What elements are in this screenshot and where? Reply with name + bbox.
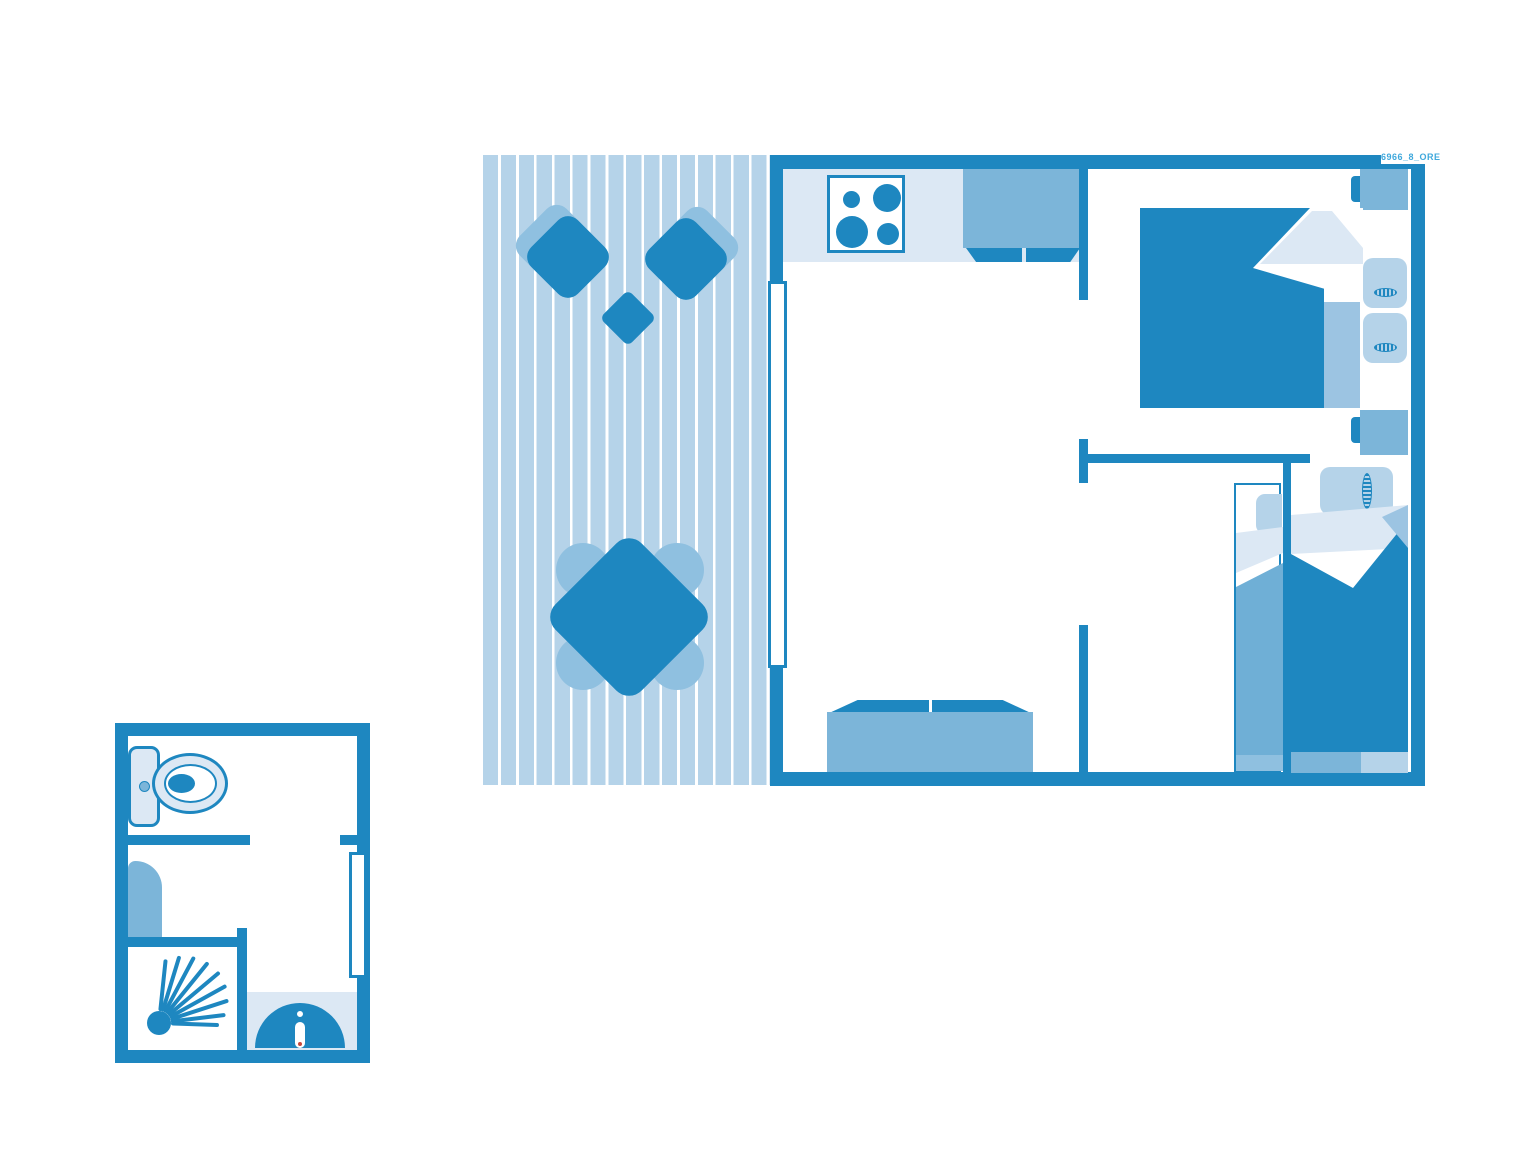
faucet-dot-icon [298, 1042, 302, 1046]
floor-plan: 6966_8_ORE [0, 0, 1536, 1152]
shower-wall-top [128, 937, 238, 947]
bed-foot-bench [1361, 752, 1408, 773]
bathroom-door-icon [349, 852, 367, 978]
bath-wall-stub [340, 835, 357, 845]
sofa-icon [827, 712, 1033, 772]
bed-foot-bench [1291, 752, 1361, 773]
sliding-door-icon [768, 281, 787, 668]
burner-icon [877, 223, 899, 245]
wall-living-lower [1079, 625, 1088, 772]
wall-left-lower [770, 668, 783, 786]
wall-bed-divider [1283, 454, 1291, 773]
single-bed-icon [1291, 505, 1408, 775]
wall-left-upper [770, 155, 783, 281]
pillow-stitch-icon [1374, 288, 1397, 297]
stove-hob-icon [827, 175, 905, 253]
kitchen-cabinet-icon [963, 169, 1079, 248]
nightstand-icon [1360, 169, 1408, 210]
burner-icon [843, 191, 860, 208]
single-bed-fold [1236, 527, 1283, 755]
wall-right [1411, 155, 1425, 786]
toilet-drain-icon [168, 774, 195, 793]
bath-wall-bottom [115, 1050, 370, 1063]
water-heater-icon [128, 861, 162, 938]
burner-icon [873, 184, 901, 212]
double-bed-sheet-band [1324, 302, 1360, 408]
wall-kitchen-bedroom [1079, 169, 1088, 300]
pillow-icon [1363, 313, 1407, 363]
nightstand-handle-icon [1351, 176, 1360, 202]
toilet-flush-icon [139, 781, 150, 792]
pillow-stitch-icon [1374, 343, 1397, 352]
pillow-stitch-icon [1362, 473, 1372, 509]
nightstand-icon [1360, 410, 1408, 455]
bath-wall-left [115, 723, 128, 1063]
bath-wall-wc [128, 835, 250, 845]
faucet-knob-icon [295, 1009, 305, 1019]
wall-top [770, 155, 1425, 169]
burner-icon [836, 216, 868, 248]
wall-bedrooms-horizontal [1088, 454, 1310, 463]
bed-foot-strip [1236, 755, 1283, 771]
pillow-icon [1363, 258, 1407, 308]
nightstand-handle-icon [1351, 417, 1360, 443]
watermark-label: 6966_8_ORE [1381, 151, 1441, 164]
shower-wall-right [237, 928, 247, 1050]
bath-wall-top [115, 723, 370, 736]
wall-living-mid [1079, 439, 1088, 483]
